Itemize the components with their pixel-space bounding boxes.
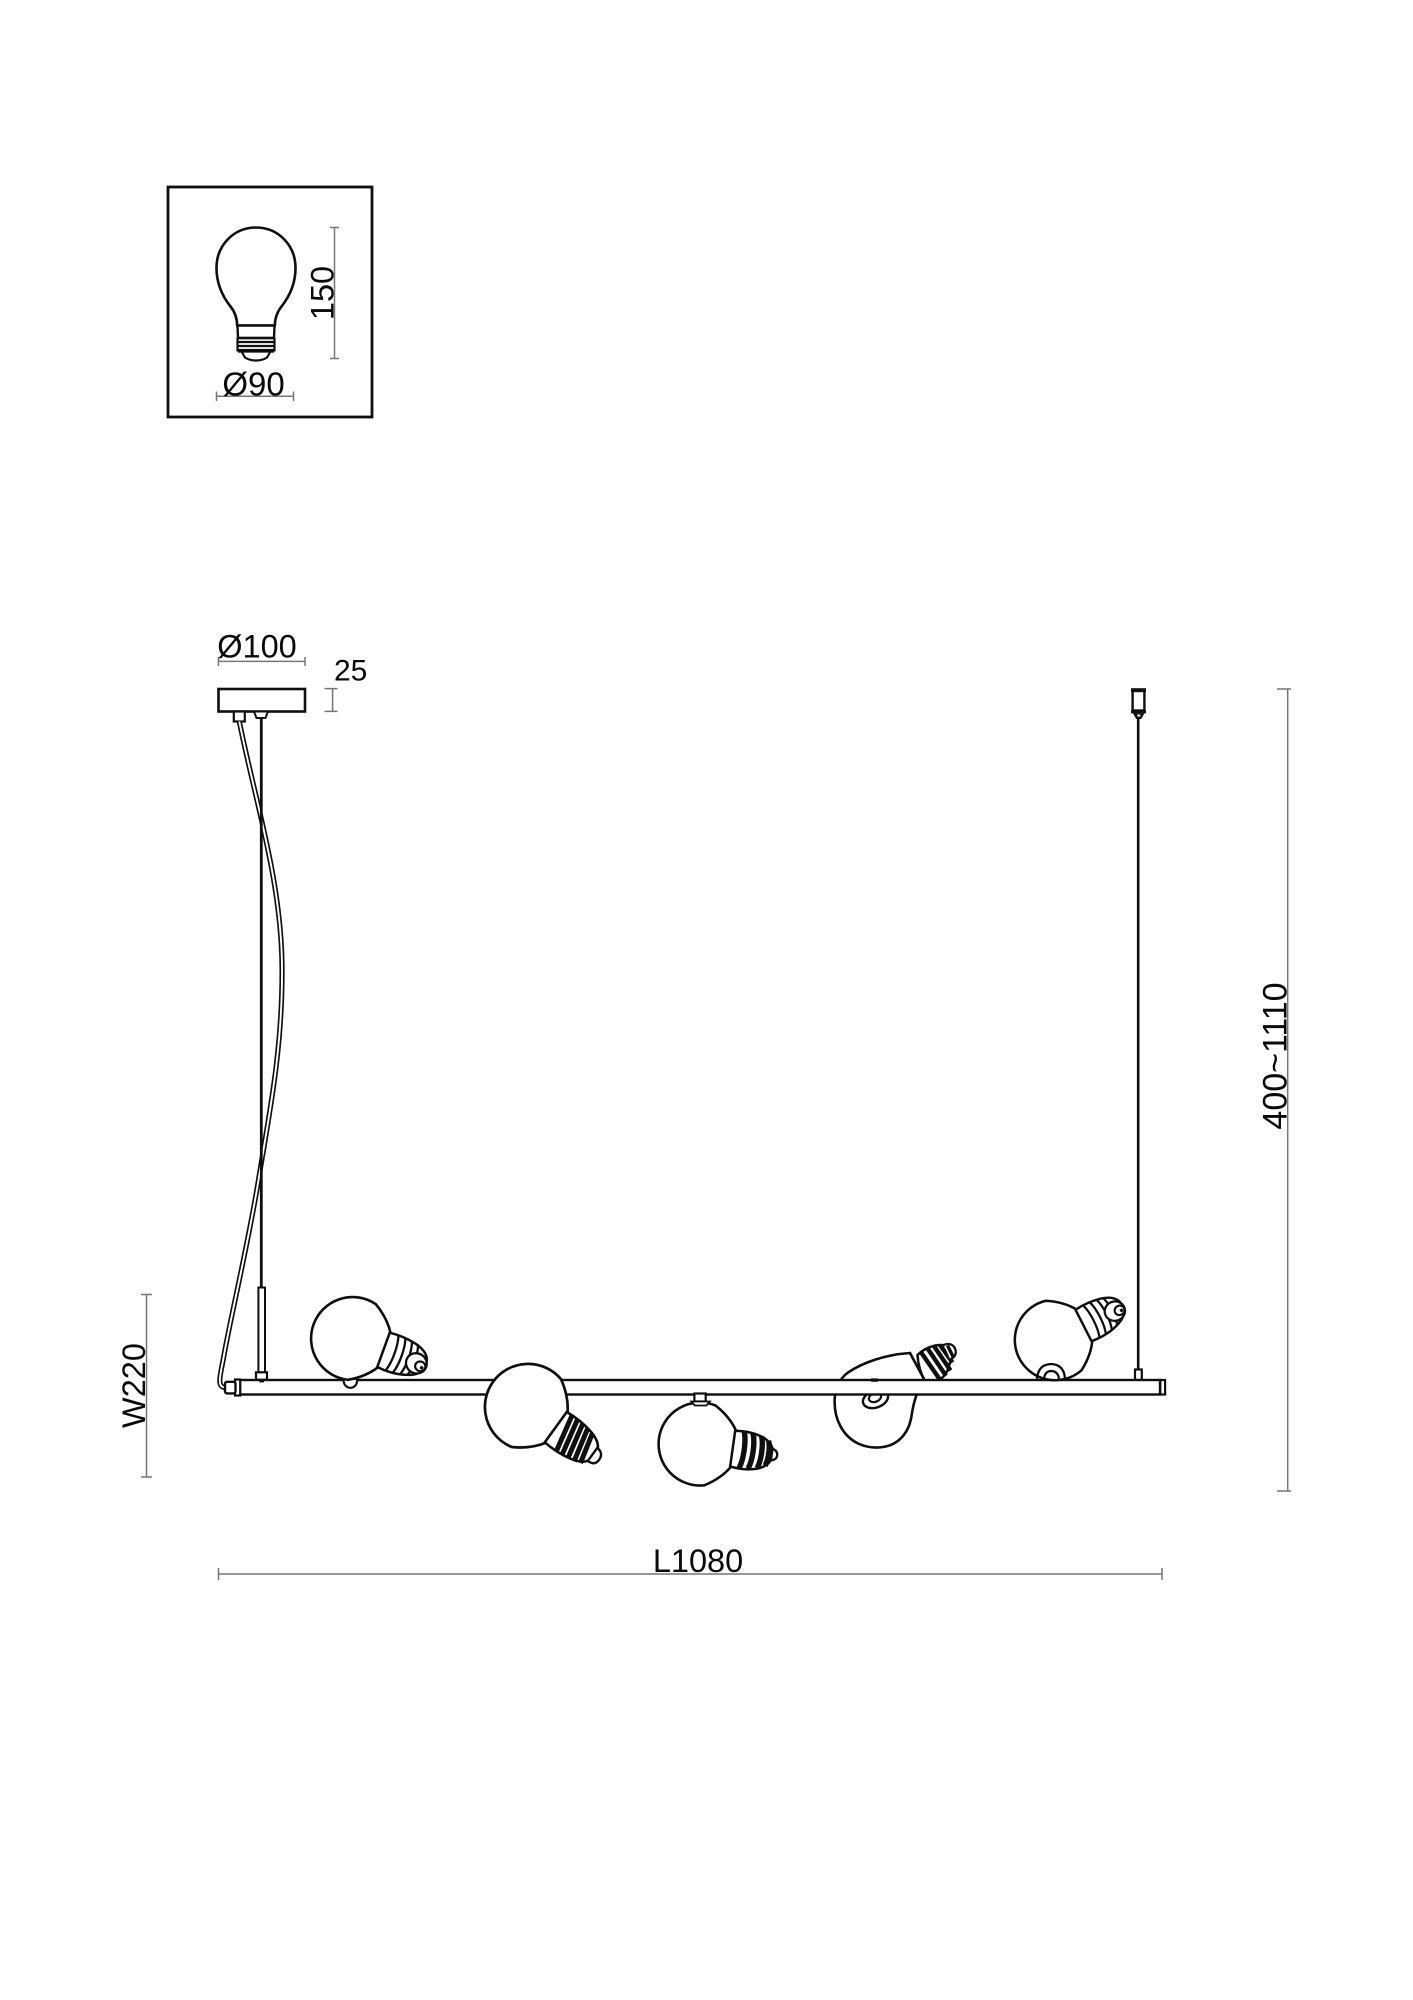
svg-text:L1080: L1080: [653, 1543, 743, 1579]
svg-text:400~1110: 400~1110: [1257, 982, 1295, 1129]
svg-text:W220: W220: [116, 1343, 152, 1428]
svg-text:150: 150: [305, 266, 341, 320]
svg-text:Ø90: Ø90: [222, 365, 284, 402]
svg-text:Ø100: Ø100: [217, 629, 297, 665]
svg-text:25: 25: [334, 655, 367, 688]
